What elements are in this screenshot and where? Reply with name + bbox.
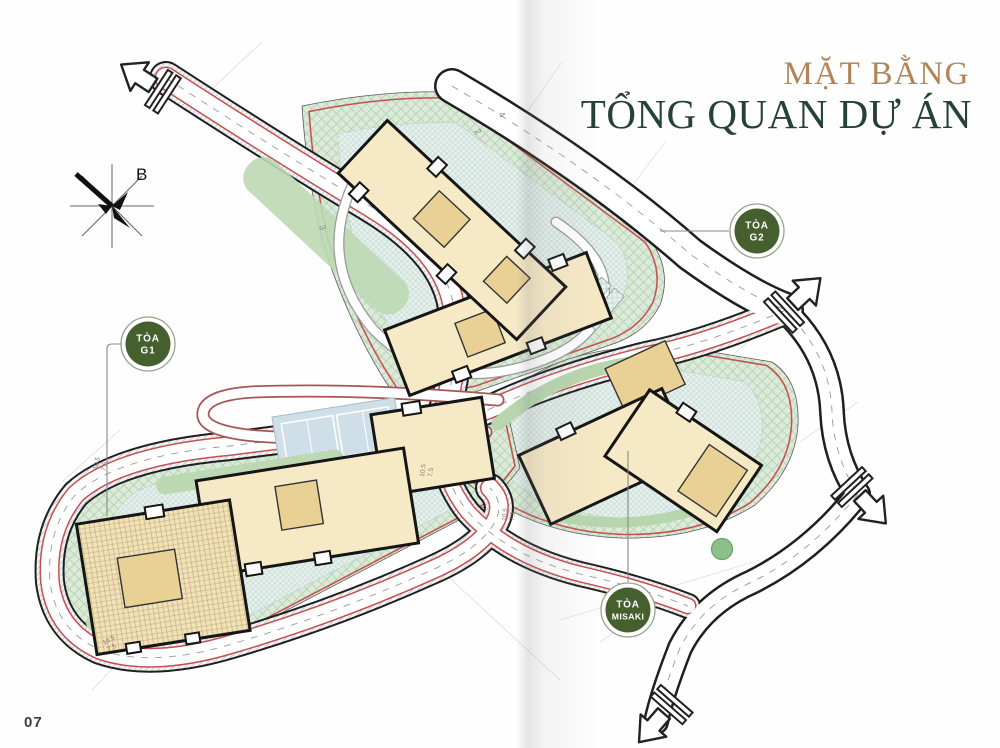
- site-plan-drawing: B TÒA G2 TÒA G1 TÒA MISAKI 10.5 7.5 10.5…: [0, 0, 1000, 748]
- badge-toa-misaki: TÒA MISAKI: [601, 583, 655, 637]
- page-title-line2: TỔNG QUAN DỰ ÁN: [581, 91, 972, 137]
- landscape-circle: [712, 539, 733, 560]
- dim-label: 7.5: [427, 467, 435, 477]
- badge-g2-line1: TÒA: [745, 219, 769, 232]
- badge-g2-line2: G2: [750, 233, 765, 244]
- page-title-line1: MẶT BẰNG: [784, 54, 971, 92]
- badge-misaki-line2: MISAKI: [612, 612, 644, 622]
- page-number: 07: [24, 714, 43, 731]
- compass-north-icon: B: [70, 164, 154, 248]
- exit-arrow-bottom: [623, 685, 692, 748]
- badge-g1-line1: TÒA: [136, 332, 160, 345]
- dim-label: 10.5: [501, 508, 509, 522]
- compass-north-label: B: [136, 165, 147, 184]
- badge-toa-g1: TÒA G1: [121, 317, 175, 371]
- badge-misaki-line1: TÒA: [616, 598, 640, 611]
- brochure-page: B TÒA G2 TÒA G1 TÒA MISAKI 10.5 7.5 10.5…: [0, 0, 1000, 748]
- dim-label: 7.5: [509, 511, 517, 521]
- badge-g1-line2: G1: [141, 346, 156, 357]
- badge-toa-g2: TÒA G2: [730, 204, 784, 258]
